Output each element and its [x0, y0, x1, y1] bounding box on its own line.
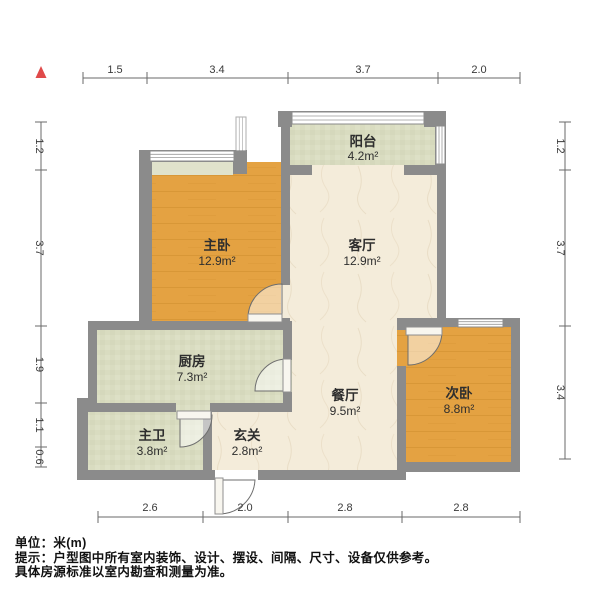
dim-label: 3.7 — [554, 240, 566, 255]
north-arrow-icon — [36, 66, 47, 78]
balcony-window-icon — [292, 112, 424, 124]
second-bedroom-window-icon — [458, 319, 503, 327]
dim-label: 3.7 — [355, 64, 370, 76]
dim-label: 3.4 — [554, 385, 566, 400]
dimension-right: 1.2 3.7 3.4 — [554, 122, 571, 459]
dim-label: 3.4 — [209, 64, 224, 76]
dim-label: 2.0 — [471, 64, 486, 76]
svg-text:主卧: 主卧 — [204, 237, 231, 253]
dim-label: 1.5 — [107, 64, 122, 76]
svg-text:玄关: 玄关 — [234, 427, 261, 443]
svg-text:8.8m²: 8.8m² — [444, 402, 475, 416]
svg-text:客厅: 客厅 — [348, 237, 376, 253]
svg-text:阳台: 阳台 — [350, 133, 377, 149]
floor-plan-page: 阳台 4.2m² 主卧 12.9m² 客厅 12.9m² 厨房 7.3m² 餐厅… — [0, 0, 606, 600]
notch-window-icon — [236, 117, 246, 151]
svg-text:2.8m²: 2.8m² — [232, 444, 263, 458]
dim-label: 0.6 — [33, 449, 45, 464]
svg-text:9.5m²: 9.5m² — [330, 404, 361, 418]
room-label-entrance-hall: 玄关 2.8m² — [232, 427, 263, 458]
dim-label: 2.6 — [142, 502, 157, 514]
room-label-master-bathroom: 主卫 3.8m² — [137, 427, 168, 458]
svg-text:厨房: 厨房 — [179, 353, 206, 369]
dim-label: 1.2 — [33, 138, 45, 153]
room-label-balcony: 阳台 4.2m² — [348, 133, 379, 163]
room-label-living-room: 客厅 12.9m² — [343, 237, 380, 268]
dim-label: 2.8 — [337, 502, 352, 514]
dim-label: 1.1 — [33, 417, 45, 432]
svg-text:主卫: 主卫 — [139, 427, 166, 443]
dimension-bottom: 2.6 2.0 2.8 2.8 — [98, 502, 520, 523]
note-line-2: 具体房源标准以室内勘查和测量为准。 — [15, 565, 575, 580]
svg-text:次卧: 次卧 — [446, 385, 473, 401]
floor-plan: 阳台 4.2m² 主卧 12.9m² 客厅 12.9m² 厨房 7.3m² 餐厅… — [0, 0, 606, 600]
dim-label: 2.0 — [237, 502, 252, 514]
svg-text:12.9m²: 12.9m² — [198, 254, 235, 268]
footer-notes: 单位：米(m) 提示：户型图中所有室内装饰、设计、摆设、间隔、尺寸、设备仅供参考… — [15, 536, 575, 580]
svg-text:12.9m²: 12.9m² — [343, 254, 380, 268]
master-bedroom-windowsill — [152, 162, 233, 175]
dim-label: 2.8 — [453, 502, 468, 514]
dim-label: 1.9 — [33, 357, 45, 372]
room-label-dining-room: 餐厅 9.5m² — [330, 387, 361, 418]
svg-text:3.8m²: 3.8m² — [137, 444, 168, 458]
dimension-top: 1.5 3.4 3.7 2.0 — [83, 64, 520, 84]
master-bedroom-window-icon — [150, 151, 234, 161]
room-label-second-bedroom: 次卧 8.8m² — [444, 385, 475, 416]
svg-text:4.2m²: 4.2m² — [348, 149, 379, 163]
svg-text:餐厅: 餐厅 — [331, 387, 359, 403]
dimension-left: 1.2 3.7 1.9 1.1 0.6 — [33, 122, 47, 467]
unit-label: 单位：米(m) — [15, 536, 575, 551]
svg-text:7.3m²: 7.3m² — [177, 370, 208, 384]
note-line-1: 提示：户型图中所有室内装饰、设计、摆设、间隔、尺寸、设备仅供参考。 — [15, 551, 575, 566]
dim-label: 1.2 — [554, 138, 566, 153]
room-label-kitchen: 厨房 7.3m² — [177, 353, 208, 384]
room-label-master-bedroom: 主卧 12.9m² — [198, 237, 235, 268]
dim-label: 3.7 — [33, 240, 45, 255]
balcony-side-window-icon — [436, 126, 445, 164]
